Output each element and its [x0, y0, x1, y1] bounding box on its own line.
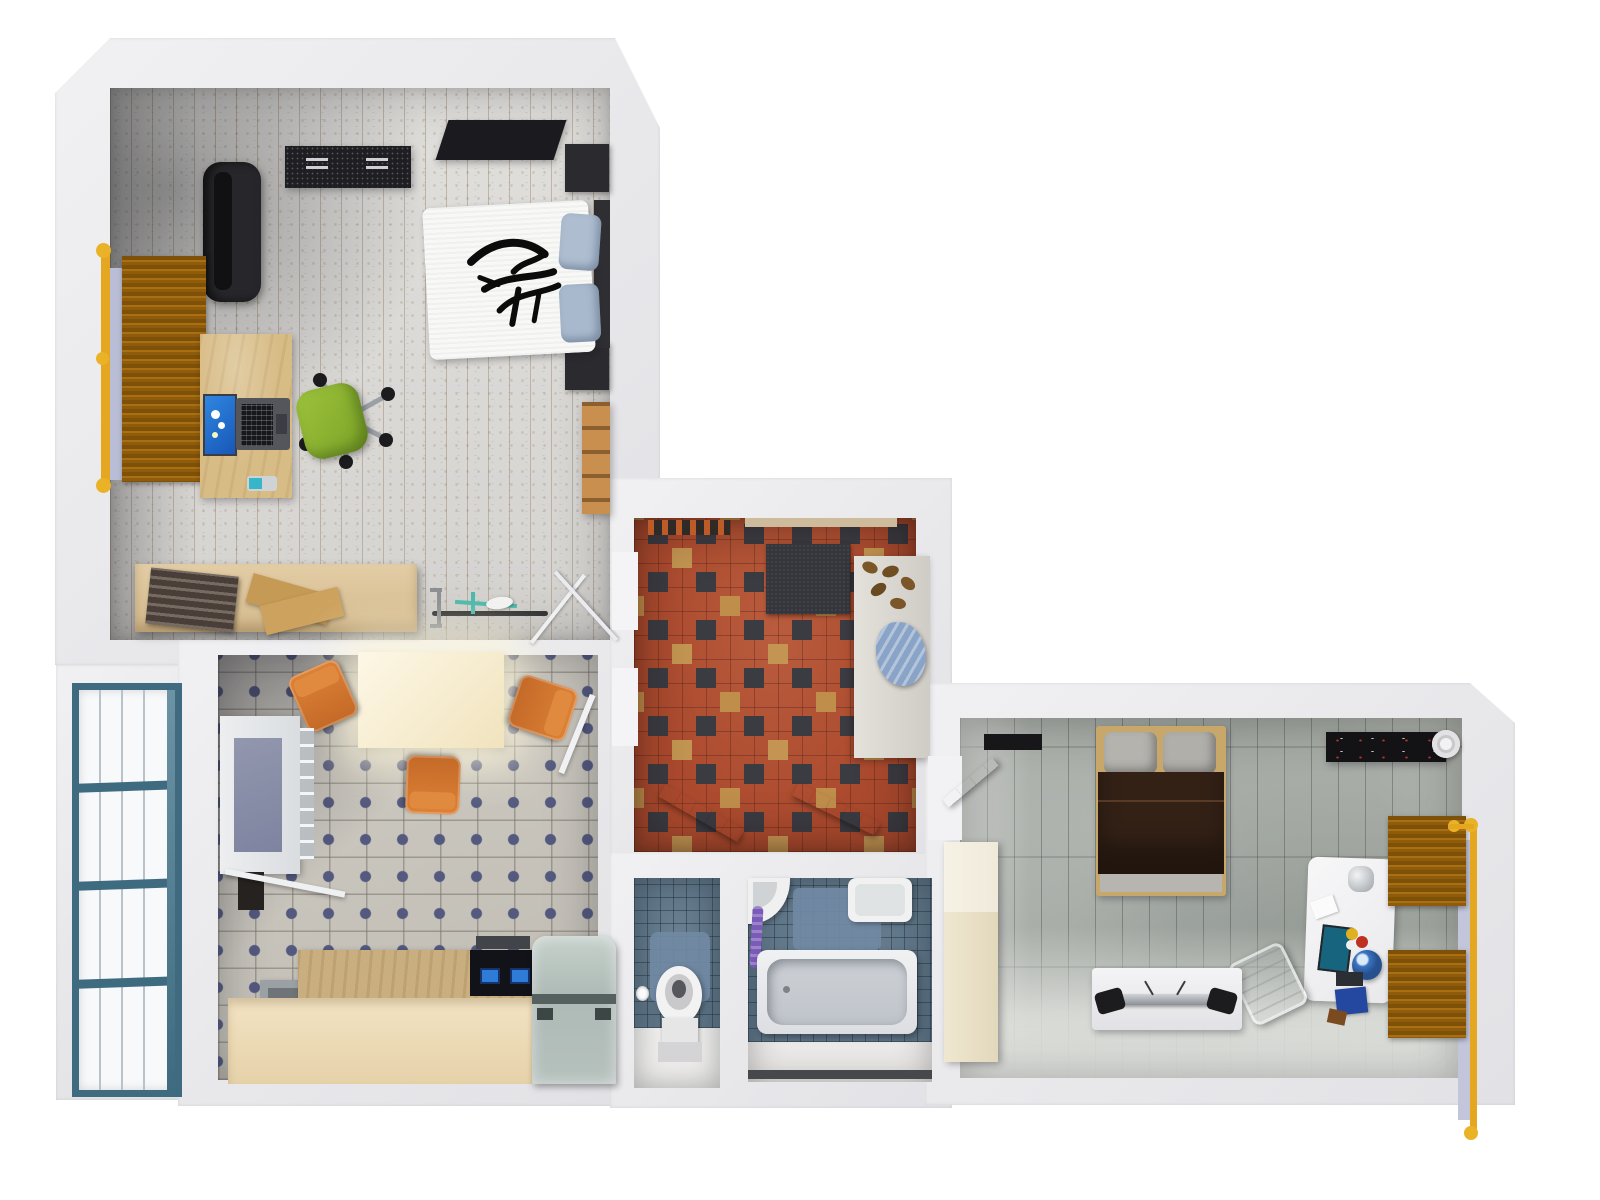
wardrobe-top-shade — [944, 842, 998, 912]
bed-pillow — [559, 283, 602, 343]
desk2-keyboard — [1336, 972, 1363, 986]
blanket-fold — [1098, 800, 1224, 802]
desk2-lamp-chrome — [1348, 866, 1374, 892]
paper-roll-white — [1432, 730, 1460, 758]
daisy-wallpaper — [211, 410, 220, 419]
dresser-black[interactable] — [285, 146, 411, 188]
burner-blue — [480, 968, 500, 984]
hall-door-opening — [612, 668, 638, 746]
bed2-pillow — [1104, 732, 1157, 774]
hall-rug-dark[interactable] — [766, 544, 850, 614]
bicycle-wheels[interactable] — [432, 611, 548, 616]
dresser-handle — [366, 166, 388, 169]
pipe-knob[interactable] — [96, 243, 111, 258]
window-bar-teal — [77, 878, 177, 890]
kitchen-chair[interactable] — [405, 755, 461, 815]
toilet-tank — [662, 1018, 698, 1044]
radiator2-pipe-yellow — [1470, 822, 1477, 1134]
bed2-frame[interactable] — [1096, 726, 1226, 896]
burner-blue — [510, 968, 530, 984]
window-mullion — [99, 690, 101, 1090]
wall-shelf-left-black — [984, 734, 1042, 750]
toilet-bowl[interactable] — [656, 966, 702, 1024]
fridge-handle — [537, 1008, 553, 1020]
laptop-screen[interactable] — [203, 394, 237, 456]
window-mullion — [143, 690, 145, 1090]
floor-balcony-window[interactable] — [72, 683, 182, 1097]
bathtub-drain — [783, 986, 790, 993]
pipe-knob[interactable] — [96, 352, 109, 365]
kitchen-window-glass — [234, 738, 282, 852]
floorplan-canvas — [0, 0, 1600, 1200]
bathroom-threshold — [748, 1070, 932, 1079]
paper-roll — [636, 986, 649, 1001]
counter-front[interactable] — [228, 998, 536, 1084]
daisy-wallpaper — [212, 432, 218, 438]
entry-doormat[interactable] — [648, 520, 730, 535]
laptop-keyboard — [241, 404, 273, 446]
bed2-blanket-brown — [1098, 772, 1224, 874]
bicycle-handlebar — [430, 624, 442, 628]
bathtub[interactable] — [757, 950, 917, 1034]
radiator2-amber[interactable] — [1388, 950, 1466, 1038]
pipe-stub — [1448, 824, 1474, 829]
cooktop-vent — [476, 936, 530, 949]
window-frame-edge — [167, 690, 175, 1090]
pipe-knob[interactable] — [1464, 1126, 1478, 1140]
couch-cushion — [214, 172, 232, 290]
towel-stack[interactable] — [145, 568, 238, 633]
fridge-handle — [595, 1008, 611, 1020]
toilet-hole — [672, 980, 686, 998]
phone[interactable] — [247, 476, 277, 491]
dresser-handle — [366, 158, 388, 161]
ladder-chair-wood[interactable] — [582, 402, 610, 514]
bed2-pillow — [1163, 732, 1216, 774]
bicycle-handlebar — [430, 588, 442, 592]
hall-door-opening — [612, 552, 638, 630]
desk2-color-balls — [1356, 936, 1368, 948]
window-mullion — [121, 690, 123, 1090]
radiator-pipe-yellow — [101, 248, 110, 488]
bicycle-frame — [471, 592, 475, 614]
laptop-touchpad — [276, 414, 287, 434]
fridge-teal[interactable] — [532, 936, 616, 1084]
radiator-amber[interactable] — [122, 256, 206, 482]
desk2-color-balls — [1346, 940, 1356, 950]
cooktop-black[interactable] — [470, 950, 540, 996]
towel-ladder-rack[interactable] — [300, 728, 314, 860]
wall-shelf-stereo-black[interactable] — [1326, 732, 1446, 762]
bed-pillow — [558, 213, 602, 272]
lounge-couch-black[interactable] — [203, 162, 261, 302]
dresser-handle — [306, 166, 328, 169]
dining-table[interactable] — [358, 652, 504, 748]
basin-inner — [855, 884, 905, 916]
daisy-wallpaper — [218, 422, 225, 429]
nightstand-top[interactable] — [565, 144, 609, 192]
sink-basin — [753, 882, 777, 908]
window-bar-teal — [77, 780, 177, 792]
phone-screen — [249, 478, 262, 489]
tribal-design — [451, 223, 577, 339]
pipe-knob[interactable] — [96, 478, 111, 493]
bed2-sheet — [1100, 874, 1222, 892]
fridge-band — [532, 994, 616, 1004]
window-bar-teal — [77, 976, 177, 988]
laundry-basin[interactable] — [848, 878, 912, 922]
toilet-base — [658, 1042, 702, 1062]
tv-panel-black[interactable] — [436, 120, 567, 160]
dresser-handle — [306, 158, 328, 161]
entry-sill — [745, 518, 897, 527]
wardrobe-beige[interactable] — [944, 842, 998, 1062]
bicycle-handlebar — [437, 588, 441, 628]
